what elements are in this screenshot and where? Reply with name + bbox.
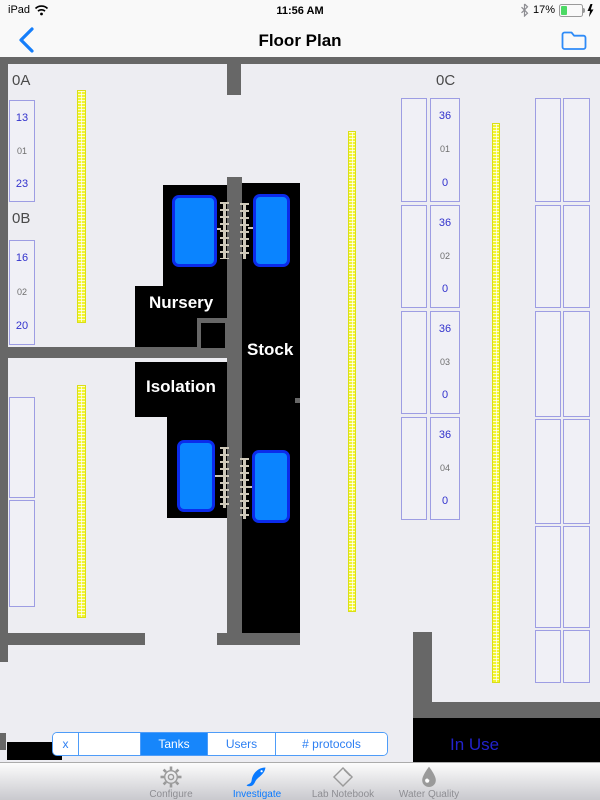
closet[interactable] (201, 323, 225, 348)
filter-segment--protocols[interactable]: # protocols (276, 733, 387, 755)
filter-segment-users[interactable]: Users (208, 733, 276, 755)
rack[interactable] (401, 311, 427, 414)
in-use-label: In Use (450, 735, 499, 755)
tab-investigate[interactable]: Investigate (214, 763, 300, 800)
rack-cell-label: 23 (16, 179, 28, 190)
in-use-bar (413, 718, 600, 762)
bluetooth-icon (520, 3, 529, 17)
rack[interactable]: 130123 (9, 100, 35, 202)
area-label: 0A (12, 72, 30, 89)
filter-segment-x[interactable]: x (53, 733, 79, 755)
tank-connector-icon (220, 202, 229, 259)
tank-connector-icon (220, 447, 229, 508)
filter-segmented-control: xTanksUsers# protocols (52, 732, 388, 756)
rack-cell-label: 01 (440, 145, 450, 154)
rack-cell-label: 36 (439, 324, 451, 335)
rack[interactable] (9, 500, 35, 607)
tab-configure[interactable]: Configure (128, 763, 214, 800)
shelf-rack[interactable] (77, 385, 86, 618)
rack-cell-label: 0 (442, 390, 448, 401)
tab-water-quality[interactable]: Water Quality (386, 763, 472, 800)
fish-icon (245, 765, 269, 789)
rack[interactable]: 36010 (430, 98, 460, 202)
notebook-icon (331, 765, 355, 789)
status-bar: iPad 11:56 AM 17% (0, 0, 600, 22)
area-label: 0C (436, 72, 455, 89)
rack[interactable] (535, 205, 561, 308)
rack-cell-label: 36 (439, 111, 451, 122)
rack-cell-label: 0 (442, 496, 448, 507)
wall-left (0, 57, 8, 662)
tab-bar: Configure Investigate Lab Notebook Water… (0, 762, 600, 800)
area-label: 0B (12, 210, 30, 227)
wall-door-tick (295, 398, 300, 403)
rack[interactable] (9, 397, 35, 498)
wall-corridor-base (217, 633, 300, 645)
rack[interactable]: 36030 (430, 311, 460, 414)
rack-cell-label: 16 (16, 253, 28, 264)
tank[interactable] (252, 450, 290, 523)
rack-cell-label: 0 (442, 178, 448, 189)
tab-label: Lab Notebook (312, 789, 374, 800)
tab-label: Investigate (233, 789, 281, 800)
rack[interactable] (563, 205, 590, 308)
rack[interactable] (401, 98, 427, 202)
app-screen: In Use 130123160220360103602036030360400… (0, 0, 600, 800)
floor-plan: In Use 130123160220360103602036030360400… (0, 0, 600, 800)
droplet-icon (417, 765, 441, 789)
shelf-rack[interactable] (492, 123, 500, 683)
charging-bolt-icon (587, 4, 594, 17)
gear-icon (159, 765, 183, 789)
rack[interactable] (563, 98, 590, 202)
rack-cell-label: 04 (440, 464, 450, 473)
tank-connector-icon (240, 458, 249, 519)
wall-top (0, 57, 600, 64)
folder-button[interactable] (560, 28, 588, 52)
tank[interactable] (253, 194, 290, 267)
rack[interactable] (535, 419, 561, 524)
page-title: Floor Plan (0, 31, 600, 51)
filter-segment-blank[interactable] (79, 733, 141, 755)
rack-cell-label: 20 (16, 321, 28, 332)
rack[interactable] (563, 526, 590, 628)
filter-segment-tanks[interactable]: Tanks (141, 733, 208, 755)
tab-label: Water Quality (399, 789, 459, 800)
rack-cell-label: 13 (16, 113, 28, 124)
room-label: Nursery (149, 293, 213, 313)
rack[interactable] (535, 630, 561, 683)
room-label: Stock (247, 340, 293, 360)
wall-right-horizontal (413, 702, 600, 718)
room-label: Isolation (146, 377, 216, 397)
rack[interactable] (563, 419, 590, 524)
rack[interactable] (535, 526, 561, 628)
clock: 11:56 AM (0, 5, 600, 17)
rack-cell-label: 03 (440, 358, 450, 367)
tab-label: Configure (149, 789, 192, 800)
nav-bar: Floor Plan (0, 22, 600, 57)
rack[interactable]: 36040 (430, 417, 460, 520)
rack[interactable] (563, 311, 590, 417)
battery-percent: 17% (533, 4, 555, 16)
tank[interactable] (177, 440, 215, 512)
rack-cell-label: 02 (17, 288, 27, 297)
rack[interactable] (535, 98, 561, 202)
tank[interactable] (172, 195, 217, 267)
rack-cell-label: 02 (440, 252, 450, 261)
shelf-rack[interactable] (348, 131, 356, 612)
rack[interactable]: 160220 (9, 240, 35, 345)
rack-cell-label: 0 (442, 284, 448, 295)
rack[interactable]: 36020 (430, 205, 460, 308)
rack[interactable] (401, 417, 427, 520)
tank-connector-icon (240, 203, 249, 259)
battery-icon (559, 4, 583, 17)
shelf-rack[interactable] (77, 90, 86, 323)
wall-corridor-stub (227, 57, 241, 95)
rack[interactable] (563, 630, 590, 683)
wall-stub-bottom-left (0, 733, 6, 750)
rack-cell-label: 36 (439, 430, 451, 441)
wall-bottom-left (0, 633, 145, 645)
rack[interactable] (401, 205, 427, 308)
rack-cell-label: 01 (17, 147, 27, 156)
rack[interactable] (535, 311, 561, 417)
rack-cell-label: 36 (439, 218, 451, 229)
tab-lab-notebook[interactable]: Lab Notebook (300, 763, 386, 800)
